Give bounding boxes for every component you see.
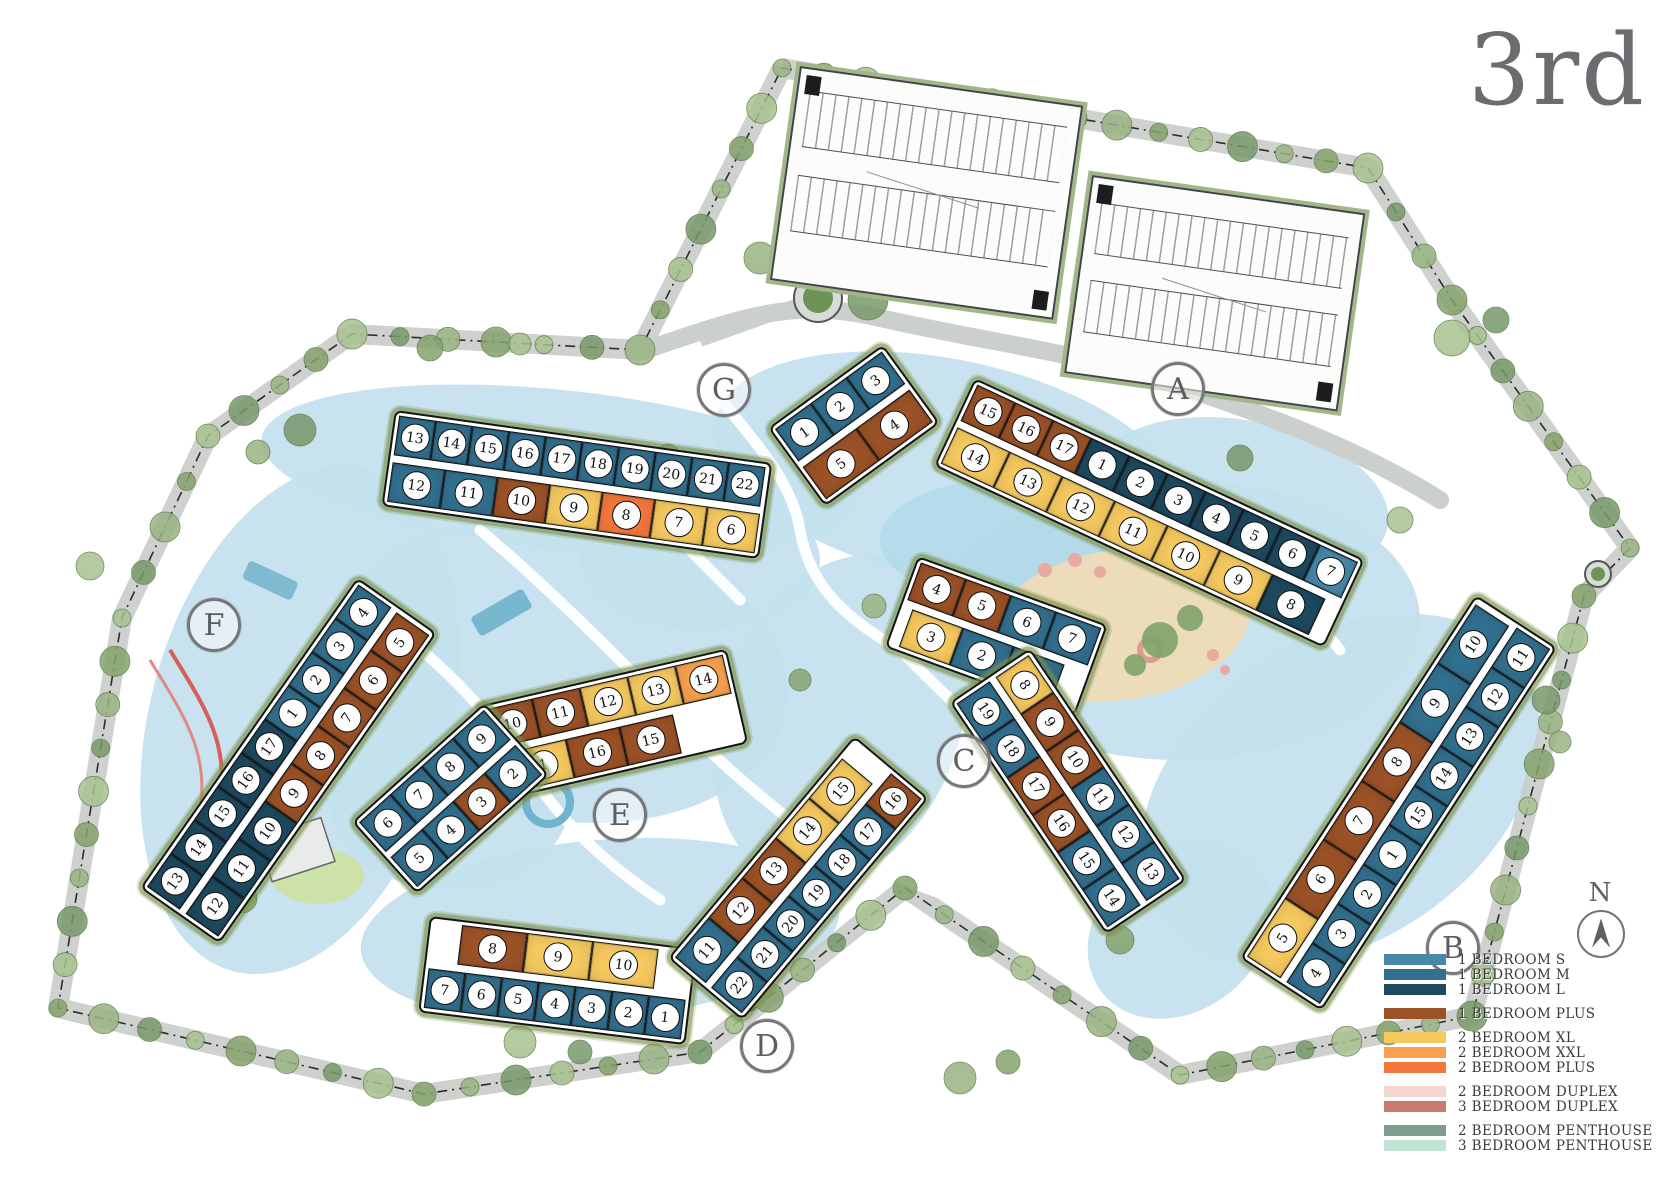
unit-number-badge: 10 (1453, 624, 1493, 664)
unit-number-badge: 7 (399, 775, 440, 816)
legend-swatch-b1plus (1384, 1008, 1446, 1019)
unit-number-badge: 8 (1005, 665, 1045, 705)
unit-number-badge: 2 (963, 637, 1000, 674)
building-d-unit-2[interactable]: 2 (607, 991, 649, 1035)
unit-number-badge: 20 (655, 458, 688, 491)
legend-swatch-b2ph (1384, 1125, 1446, 1136)
legend-item-b2xl: 2 BEDROOM XL (1384, 1030, 1653, 1045)
building-d-label[interactable]: D (740, 1019, 794, 1073)
unit-number-badge: 13 (1009, 463, 1048, 502)
building-g-unit-9[interactable]: 9 (545, 484, 603, 531)
legend-label: 1 BEDROOM PLUS (1458, 1006, 1595, 1022)
unit-number-badge: 4 (539, 988, 571, 1020)
building-d-unit-8[interactable]: 8 (457, 925, 527, 973)
unit-number-badge: 1 (649, 1001, 681, 1033)
legend-group-1: 1 BEDROOM S1 BEDROOM M1 BEDROOM L (1384, 952, 1653, 997)
building-g-unit-14[interactable]: 14 (430, 421, 472, 466)
north-label: N (1577, 880, 1623, 906)
site-plan: 13141516171819202122121110987612354G1516… (0, 0, 1680, 1187)
unit-number-badge: 5 (502, 983, 534, 1015)
legend-item-b1l: 1 BEDROOM L (1384, 982, 1653, 997)
building-d-unit-3[interactable]: 3 (571, 986, 613, 1030)
stair-core (1316, 382, 1333, 403)
unit-number-badge: 7 (1339, 801, 1379, 841)
unit-number-badge: 14 (686, 662, 721, 697)
unit-number-badge: 12 (1475, 677, 1515, 717)
unit-number-badge: 10 (248, 811, 288, 851)
unit-number-badge: 6 (1008, 604, 1045, 641)
building-g-unit-17[interactable]: 17 (540, 436, 582, 481)
unit-number-badge: 13 (638, 673, 673, 708)
unit-number-badge: 12 (1061, 487, 1100, 526)
unit-number-badge: 16 (508, 437, 541, 470)
legend-label: 2 BEDROOM PLUS (1458, 1060, 1595, 1076)
unit-number-badge: 14 (435, 427, 468, 460)
unit-number-badge: 1 (1373, 835, 1413, 875)
unit-number-badge: 14 (1091, 877, 1131, 917)
unit-number-badge: 7 (1311, 552, 1350, 591)
legend-swatch-b2xxl (1384, 1047, 1446, 1058)
unit-number-badge: 4 (430, 810, 471, 851)
compass-ring (1577, 910, 1625, 958)
unit-number-badge: 16 (225, 761, 265, 801)
unit-number-badge: 7 (327, 698, 367, 738)
legend-swatch-b3ph (1384, 1140, 1446, 1151)
north-compass: N (1577, 880, 1623, 958)
stair-core (804, 75, 821, 96)
unit-number-badge: 8 (1272, 585, 1311, 624)
legend-group-5: 2 BEDROOM PENTHOUSE3 BEDROOM PENTHOUSE (1384, 1123, 1653, 1153)
unit-number-badge: 5 (963, 587, 1000, 624)
unit-number-badge: 19 (618, 453, 651, 486)
parking-stalls (802, 91, 1067, 184)
unit-number-badge: 16 (1007, 410, 1046, 449)
unit-number-badge: 3 (912, 619, 949, 656)
unit-number-badge: 17 (249, 727, 289, 767)
building-f-label[interactable]: F (187, 598, 241, 652)
unit-number-badge: 15 (472, 432, 505, 465)
unit-number-badge: 13 (1449, 717, 1489, 757)
unit-number-badge: 5 (380, 622, 420, 662)
legend-swatch-b3duplex (1384, 1101, 1446, 1112)
unit-number-badge: 9 (1415, 683, 1455, 723)
unit-number-badge: 9 (274, 773, 314, 813)
unit-number-badge: 8 (476, 933, 508, 965)
unit-number-badge: 15 (1398, 796, 1438, 836)
unit-number-badge: 11 (221, 848, 261, 888)
unit-number-badge: 11 (1114, 512, 1153, 551)
unit-number-badge: 13 (1130, 851, 1170, 891)
unit-number-badge: 10 (1166, 536, 1205, 575)
unit-number-badge: 2 (820, 386, 861, 427)
legend-group-2: 1 BEDROOM PLUS (1384, 1006, 1653, 1021)
unit-number-badge: 10 (505, 484, 538, 517)
legend-item-b3ph: 3 BEDROOM PENTHOUSE (1384, 1138, 1653, 1153)
unit-number-badge: 7 (428, 974, 460, 1006)
legend-label: 2 BEDROOM DUPLEX (1458, 1084, 1618, 1100)
unit-number-badge: 11 (1080, 777, 1120, 817)
unit-number-badge: 4 (1197, 499, 1236, 538)
building-e-unit-12[interactable]: 12 (579, 677, 636, 727)
legend-item-b3duplex: 3 BEDROOM DUPLEX (1384, 1099, 1653, 1114)
unit-number-badge: 6 (1301, 859, 1341, 899)
building-g-unit-8[interactable]: 8 (597, 492, 655, 539)
legend-item-b1plus: 1 BEDROOM PLUS (1384, 1006, 1653, 1021)
building-e-unit-15[interactable]: 15 (619, 714, 682, 765)
unit-number-badge: 13 (155, 861, 195, 901)
floor-title: 3rd (1468, 14, 1646, 128)
unit-number-badge: 17 (1045, 428, 1084, 467)
unit-number-badge: 13 (753, 850, 794, 891)
parking-stalls (1094, 202, 1349, 289)
building-g-label[interactable]: G (697, 363, 751, 417)
legend-item-b2ph: 2 BEDROOM PENTHOUSE (1384, 1123, 1653, 1138)
unit-number-badge: 4 (918, 571, 955, 608)
unit-number-badge: 16 (580, 735, 615, 770)
unit-number-badge: 3 (320, 626, 360, 666)
stair-core (1096, 184, 1113, 205)
unit-number-badge: 21 (692, 463, 725, 496)
building-g-unit-19[interactable]: 19 (614, 447, 656, 492)
unit-number-badge: 15 (820, 771, 861, 812)
building-e-unit-13[interactable]: 13 (627, 666, 684, 716)
legend-item-b2xxl: 2 BEDROOM XXL (1384, 1045, 1653, 1060)
unit-number-badge: 2 (296, 660, 336, 700)
unit-number-badge: 16 (873, 781, 914, 822)
north-arrow-icon (1586, 917, 1616, 951)
unit-number-badge: 14 (956, 438, 995, 477)
legend-swatch-b1m (1384, 969, 1446, 980)
unit-number-badge: 5 (399, 838, 440, 879)
unit-number-badge: 11 (1501, 638, 1541, 678)
building-g-unit-11[interactable]: 11 (440, 470, 498, 517)
legend-label: 3 BEDROOM DUPLEX (1458, 1099, 1618, 1115)
legend-swatch-b2xl (1384, 1032, 1446, 1043)
building-d-unit-5[interactable]: 5 (497, 977, 539, 1021)
building-c-label[interactable]: C (937, 734, 991, 788)
unit-number-badge: 6 (715, 514, 748, 547)
unit-number-badge: 11 (452, 477, 485, 510)
building-g-unit-12[interactable]: 12 (387, 462, 445, 509)
unit-number-badge: 14 (1424, 756, 1464, 796)
unit-number-badge: 1 (784, 412, 825, 453)
legend-swatch-b1s (1384, 954, 1446, 965)
unit-number-badge: 6 (465, 979, 497, 1011)
unit-number-badge: 15 (633, 723, 668, 758)
unit-number-badge: 9 (557, 491, 590, 524)
unit-number-badge: 6 (368, 803, 409, 844)
building-d-unit-6[interactable]: 6 (460, 973, 502, 1017)
unit-number-badge: 12 (1105, 814, 1145, 854)
stair-core (1031, 290, 1048, 311)
unit-number-badge: 11 (543, 695, 578, 730)
legend-group-3: 2 BEDROOM XL2 BEDROOM XXL2 BEDROOM PLUS (1384, 1030, 1653, 1075)
unit-number-badge: 1 (272, 693, 312, 733)
building-d-unit-10[interactable]: 10 (588, 941, 658, 989)
unit-number-badge: 15 (1066, 840, 1106, 880)
unit-number-badge: 22 (728, 468, 761, 501)
unit-number-badge: 6 (353, 660, 393, 700)
unit-number-badge: 14 (787, 810, 828, 851)
unit-number-badge: 9 (1219, 561, 1258, 600)
building-e-unit-14[interactable]: 14 (675, 655, 732, 705)
unit-number-badge: 8 (430, 746, 471, 787)
building-g-unit-7[interactable]: 7 (650, 499, 708, 546)
unit-number-badge: 11 (687, 930, 728, 971)
building-e-unit-11[interactable]: 11 (532, 688, 589, 738)
unit-number-badge: 18 (582, 447, 615, 480)
unit-number-badge: 9 (461, 718, 502, 759)
building-g-unit-22[interactable]: 22 (723, 462, 765, 507)
legend-group-4: 2 BEDROOM DUPLEX3 BEDROOM DUPLEX (1384, 1084, 1653, 1114)
unit-number-badge: 3 (1321, 914, 1361, 954)
unit-number-badge: 5 (1235, 517, 1274, 556)
building-d-unit-7[interactable]: 7 (424, 968, 466, 1012)
unit-number-badge: 8 (1377, 742, 1417, 782)
legend-item-b2plus: 2 BEDROOM PLUS (1384, 1060, 1653, 1075)
unit-number-badge: 18 (991, 728, 1031, 768)
building-a-label[interactable]: A (1151, 362, 1205, 416)
building-g-unit-18[interactable]: 18 (577, 441, 619, 486)
parking-garage-1 (770, 66, 1083, 320)
legend-label: 2 BEDROOM XL (1458, 1030, 1575, 1046)
legend-item-b1m: 1 BEDROOM M (1384, 967, 1653, 982)
unit-number-badge: 7 (1053, 620, 1090, 657)
legend-item-b2duplex: 2 BEDROOM DUPLEX (1384, 1084, 1653, 1099)
unit-number-badge: 1 (1083, 446, 1122, 485)
unit-number-badge: 14 (178, 828, 218, 868)
unit-number-badge: 8 (300, 735, 340, 775)
unit-number-badge: 12 (720, 890, 761, 931)
unit-number-badge: 5 (821, 444, 862, 485)
unit-number-badge: 5 (1263, 918, 1303, 958)
unit-number-badge: 2 (1347, 874, 1387, 914)
legend-swatch-b1l (1384, 984, 1446, 995)
legend-swatch-b2plus (1384, 1062, 1446, 1073)
legend-item-b1s: 1 BEDROOM S (1384, 952, 1653, 967)
unit-number-badge: 8 (610, 499, 643, 532)
unit-number-badge: 15 (202, 794, 242, 834)
building-g-unit-16[interactable]: 16 (504, 431, 546, 476)
building-g-unit-21[interactable]: 21 (687, 457, 729, 502)
unit-number-badge: 4 (1296, 953, 1336, 993)
building-g-unit-20[interactable]: 20 (650, 452, 692, 497)
building-e-label[interactable]: E (593, 788, 647, 842)
legend-swatch-b2duplex (1384, 1086, 1446, 1097)
building-g-unit-10[interactable]: 10 (492, 477, 550, 524)
unit-number-badge: 9 (542, 941, 574, 973)
legend-label: 1 BEDROOM L (1458, 982, 1565, 998)
unit-type-legend: 1 BEDROOM S1 BEDROOM M1 BEDROOM L1 BEDRO… (1384, 952, 1653, 1162)
legend-label: 2 BEDROOM XXL (1458, 1045, 1585, 1061)
unit-number-badge: 15 (969, 392, 1008, 431)
unit-number-badge: 2 (1121, 463, 1160, 502)
building-g-unit-15[interactable]: 15 (467, 426, 509, 471)
unit-number-badge: 10 (607, 949, 639, 981)
unit-number-badge: 17 (1016, 766, 1056, 806)
unit-number-badge: 10 (1055, 739, 1095, 779)
building-g-unit-13[interactable]: 13 (394, 416, 436, 461)
unit-number-badge: 9 (1030, 702, 1070, 742)
parking-garage-2 (1064, 175, 1365, 411)
unit-number-badge: 16 (1041, 803, 1081, 843)
unit-number-badge: 12 (195, 886, 235, 926)
legend-label: 1 BEDROOM M (1458, 967, 1570, 983)
unit-number-badge: 3 (575, 992, 607, 1024)
unit-number-badge: 6 (1273, 534, 1312, 573)
unit-number-badge: 13 (398, 422, 431, 455)
unit-number-badge: 19 (966, 691, 1006, 731)
building-d-unit-4[interactable]: 4 (534, 982, 576, 1026)
building-e-unit-16[interactable]: 16 (566, 727, 629, 778)
unit-number-badge: 3 (855, 360, 896, 401)
building-d-unit-9[interactable]: 9 (523, 933, 593, 981)
building-d-unit-1[interactable]: 1 (644, 995, 686, 1039)
unit-number-badge: 7 (662, 506, 695, 539)
unit-number-badge: 17 (545, 442, 578, 475)
unit-number-badge: 3 (461, 781, 502, 822)
unit-number-badge: 3 (1159, 481, 1198, 520)
unit-number-badge: 2 (612, 997, 644, 1029)
unit-number-badge: 2 (493, 753, 534, 794)
building-g-unit-6[interactable]: 6 (702, 506, 760, 553)
legend-label: 1 BEDROOM S (1458, 952, 1566, 968)
legend-label: 3 BEDROOM PENTHOUSE (1458, 1138, 1653, 1154)
legend-label: 2 BEDROOM PENTHOUSE (1458, 1123, 1653, 1139)
unit-number-badge: 4 (343, 593, 383, 633)
unit-number-badge: 4 (874, 405, 915, 446)
unit-number-badge: 12 (590, 684, 625, 719)
unit-number-badge: 12 (400, 469, 433, 502)
